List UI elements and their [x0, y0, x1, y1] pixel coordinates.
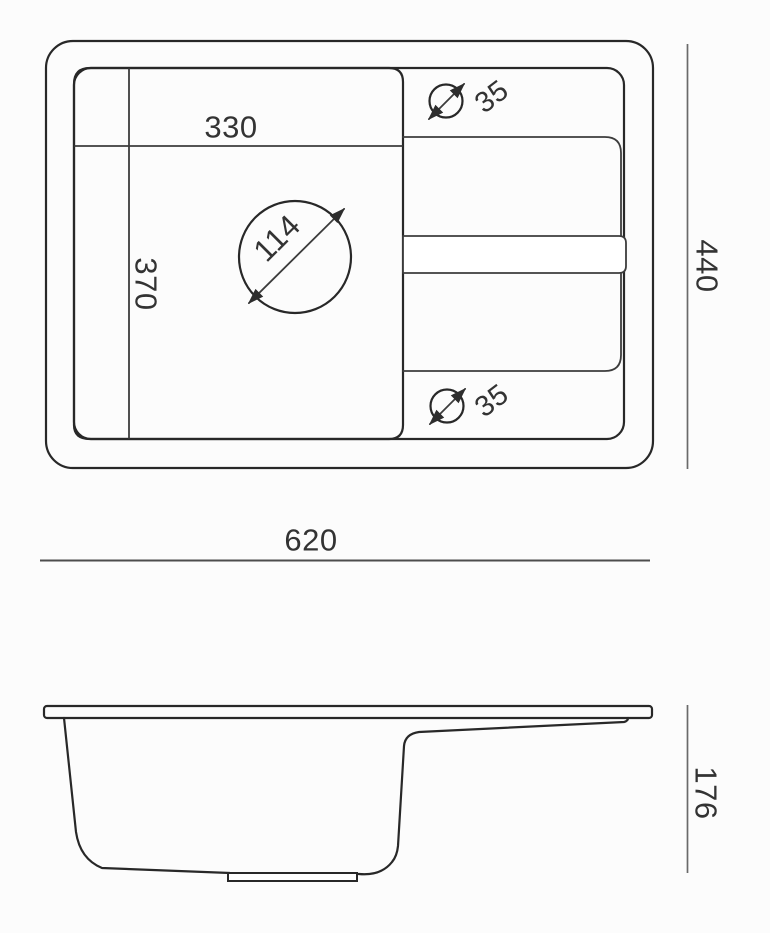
side-view-rim — [44, 706, 652, 718]
bowl-depth-label: 370 — [129, 257, 164, 310]
faucet-hole-bottom-diameter-label: 35 — [469, 378, 515, 424]
overall-depth-label: 440 — [690, 239, 725, 292]
side-view-profile — [64, 718, 628, 874]
sink-dimension-drawing: 35 114 35 330 370 440 620 176 — [0, 0, 770, 933]
bowl-width-label: 330 — [204, 110, 257, 145]
overall-height-label: 176 — [689, 766, 724, 819]
overall-width-label: 620 — [284, 523, 337, 558]
technical-drawing-canvas: 35 114 35 330 370 440 620 176 — [0, 0, 770, 933]
drainboard-groove — [403, 236, 626, 273]
faucet-hole-top-diameter-label: 35 — [469, 74, 515, 120]
side-view-drain-flange — [228, 873, 357, 881]
